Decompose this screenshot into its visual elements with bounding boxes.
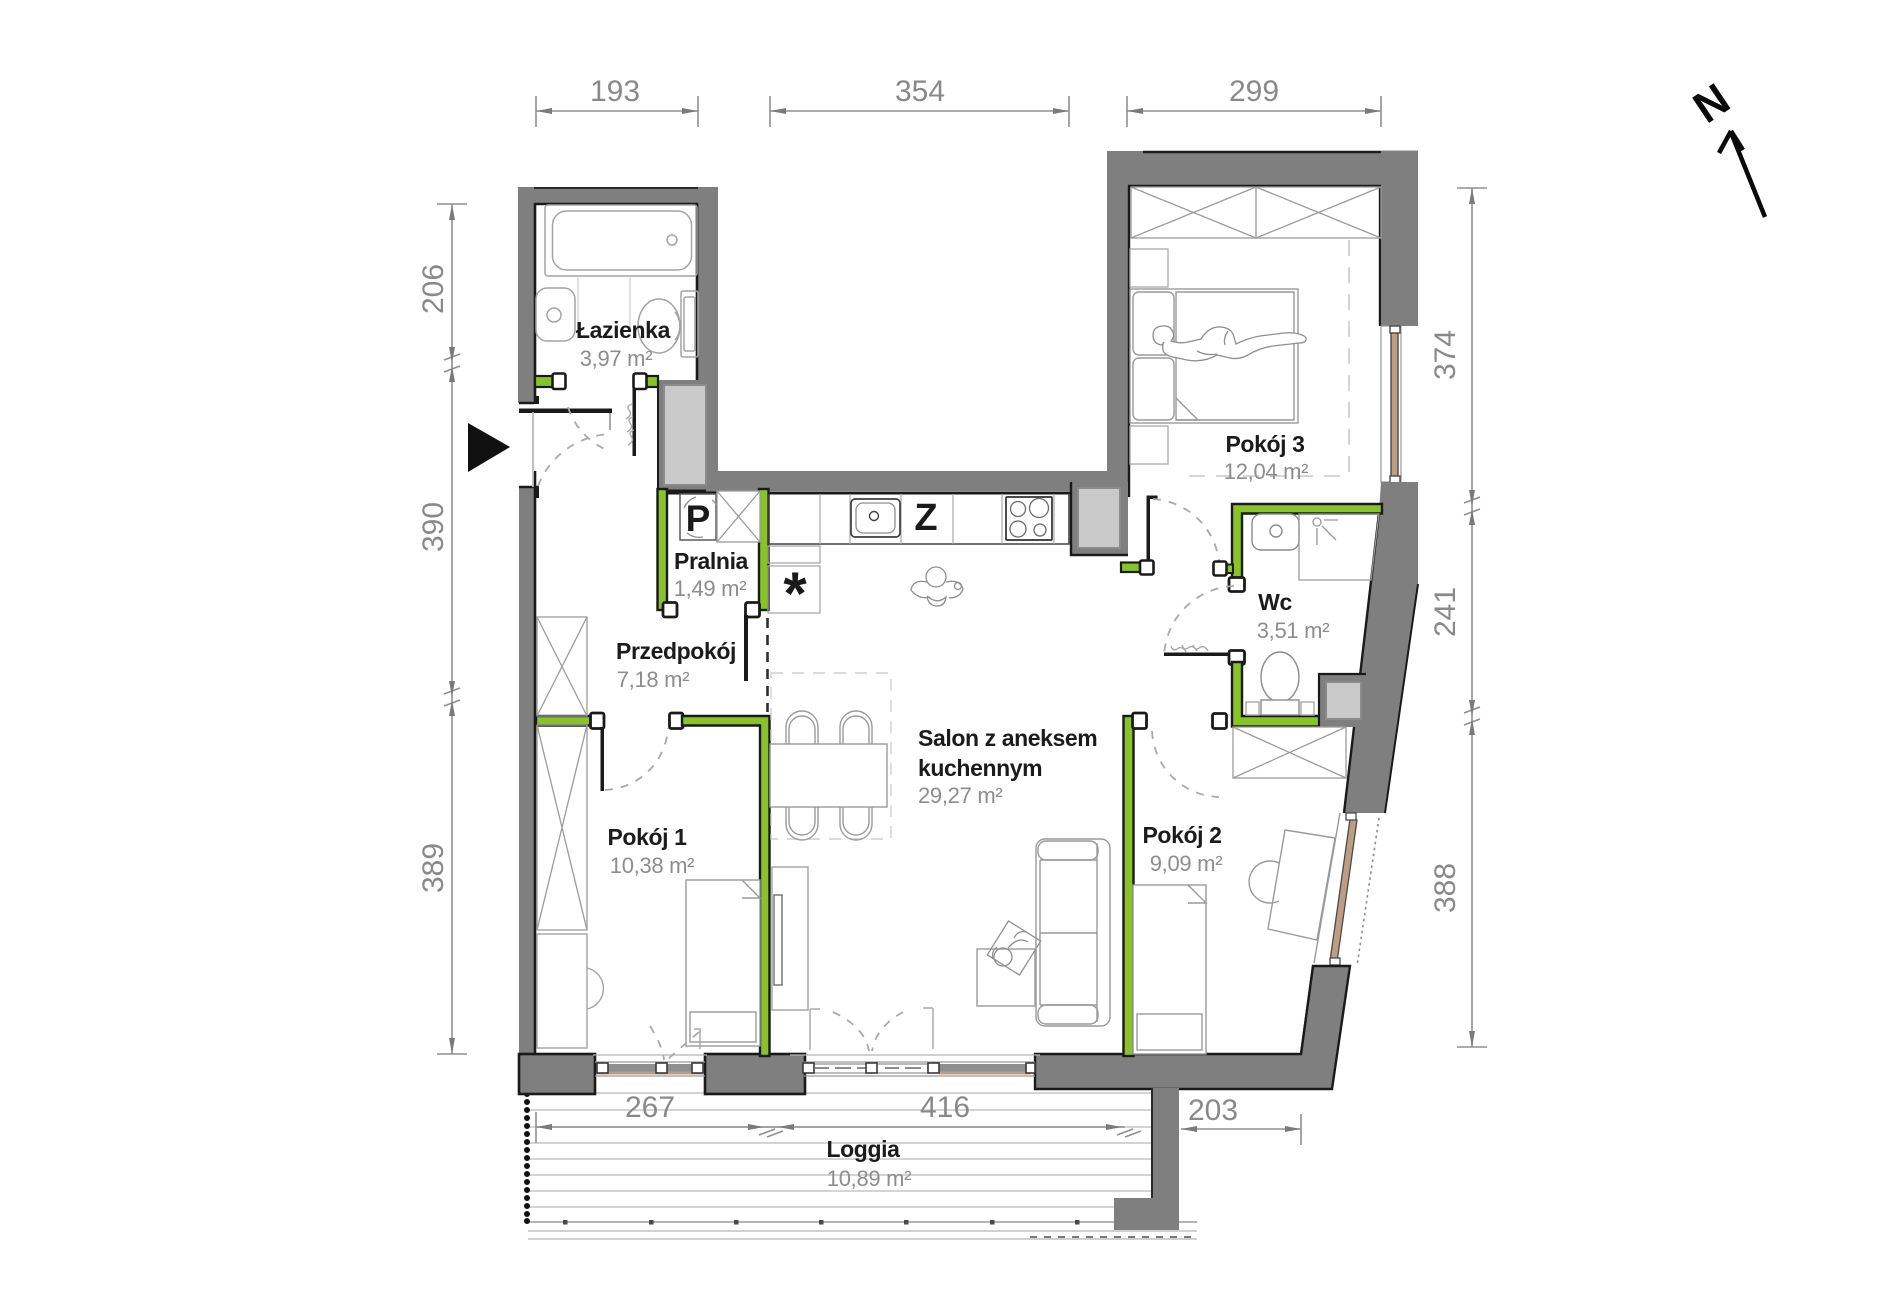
svg-text:416: 416 <box>920 1091 970 1124</box>
svg-text:241: 241 <box>1429 587 1462 637</box>
svg-text:Z: Z <box>914 497 937 539</box>
svg-text:3,97 m²: 3,97 m² <box>580 346 652 371</box>
svg-text:29,27 m²: 29,27 m² <box>918 783 1002 808</box>
svg-text:299: 299 <box>1229 75 1279 108</box>
svg-text:390: 390 <box>417 502 450 552</box>
svg-text:388: 388 <box>1429 863 1462 913</box>
svg-text:10,89 m²: 10,89 m² <box>827 1166 911 1191</box>
svg-text:7,18 m²: 7,18 m² <box>617 667 689 692</box>
svg-text:374: 374 <box>1429 330 1462 380</box>
svg-text:389: 389 <box>417 843 450 893</box>
svg-text:P: P <box>686 498 711 539</box>
svg-text:193: 193 <box>590 75 640 108</box>
svg-text:Pokój 1: Pokój 1 <box>607 824 687 850</box>
svg-text:Przedpokój: Przedpokój <box>616 638 736 664</box>
svg-text:267: 267 <box>625 1091 675 1124</box>
svg-text:354: 354 <box>895 75 945 108</box>
svg-text:203: 203 <box>1188 1094 1238 1127</box>
svg-text:12,04 m²: 12,04 m² <box>1224 459 1308 484</box>
svg-text:Wc: Wc <box>1258 589 1292 615</box>
svg-text:kuchennym: kuchennym <box>918 755 1042 781</box>
svg-text:Loggia: Loggia <box>827 1136 901 1162</box>
svg-text:Łazienka: Łazienka <box>576 317 671 343</box>
svg-text:Pokój 2: Pokój 2 <box>1142 822 1221 848</box>
svg-text:*: * <box>783 560 807 627</box>
svg-text:206: 206 <box>417 264 450 314</box>
svg-text:Pokój 3: Pokój 3 <box>1225 431 1304 457</box>
svg-text:Pralnia: Pralnia <box>674 548 749 574</box>
svg-text:10,38 m²: 10,38 m² <box>610 853 694 878</box>
svg-text:1,49 m²: 1,49 m² <box>674 576 746 601</box>
svg-text:Salon z aneksem: Salon z aneksem <box>918 725 1097 751</box>
svg-text:9,09 m²: 9,09 m² <box>1150 851 1222 876</box>
svg-text:3,51 m²: 3,51 m² <box>1257 618 1329 643</box>
